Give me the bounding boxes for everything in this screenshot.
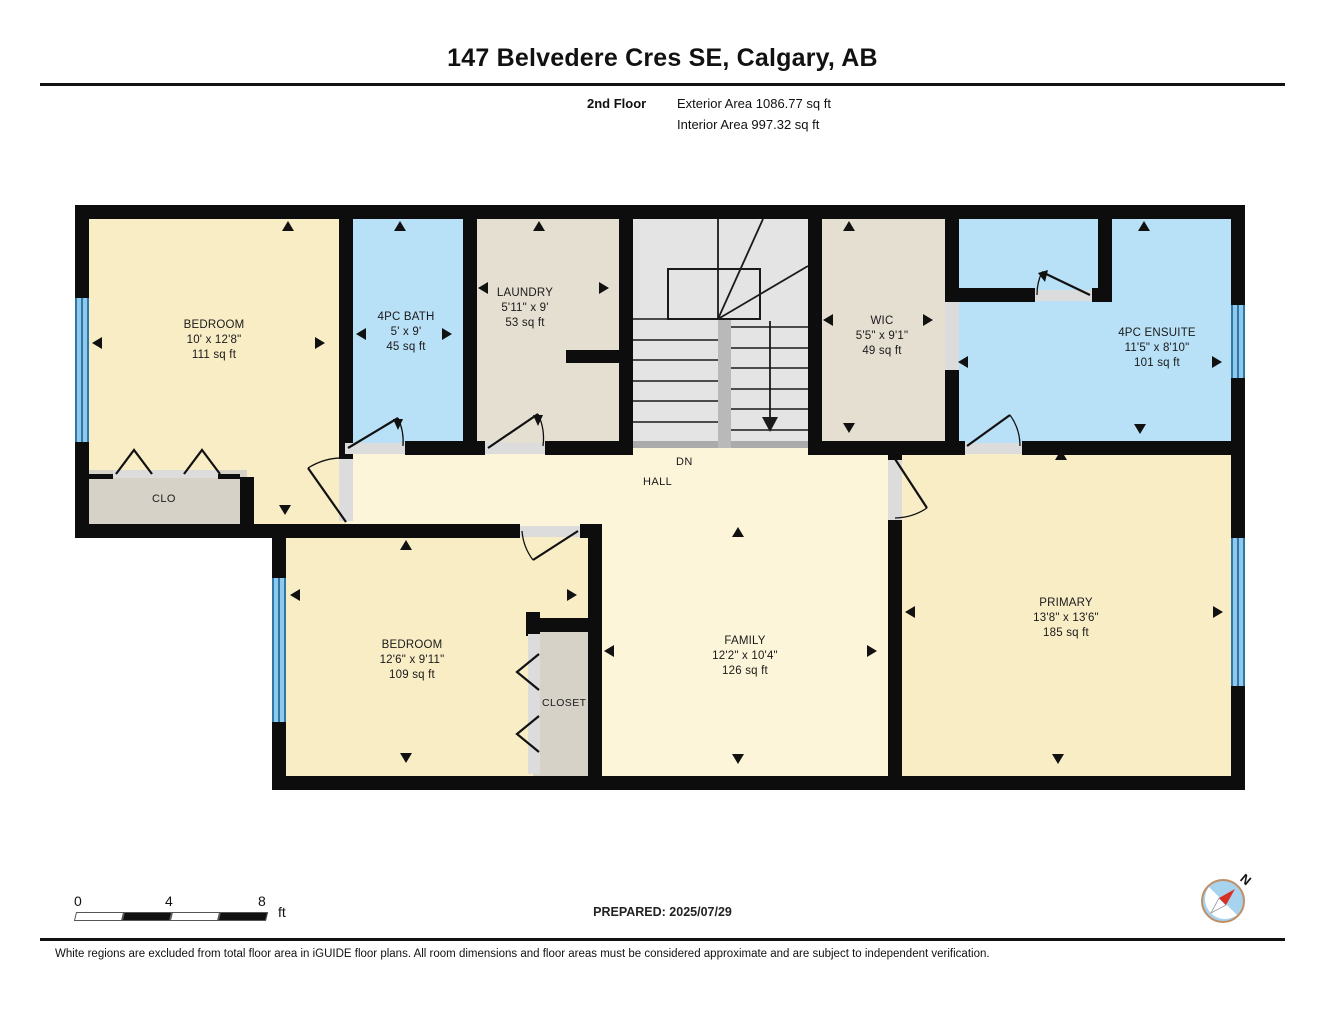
dimension-arrow-icon: [282, 221, 294, 231]
window-bedroom-1: [75, 298, 89, 442]
wall: [945, 288, 1035, 302]
room-label-family: FAMILY 12'2" x 10'4" 126 sq ft: [712, 634, 778, 679]
dimension-arrow-icon: [843, 221, 855, 231]
door-bedroom-1: [296, 455, 352, 527]
room-area: 101 sq ft: [1118, 356, 1196, 371]
wall: [888, 520, 902, 776]
room-dims: 12'6" x 9'11": [380, 653, 445, 668]
dimension-arrow-icon: [599, 282, 609, 294]
room-dims: 5'5" x 9'1": [856, 329, 908, 344]
room-label-wic: WIC 5'5" x 9'1" 49 sq ft: [856, 314, 908, 359]
dimension-arrow-icon: [1212, 356, 1222, 368]
wall: [545, 441, 633, 455]
dimension-arrow-icon: [1052, 754, 1064, 764]
room-label-clo: CLO: [152, 493, 176, 505]
dimension-arrow-icon: [905, 606, 915, 618]
stairs-dn-label: DN: [676, 456, 693, 468]
room-area: 49 sq ft: [856, 344, 908, 359]
room-label-closet: CLOSET: [542, 697, 586, 709]
wall: [808, 219, 822, 455]
interior-area: Interior Area 997.32 sq ft: [677, 117, 819, 132]
room-area: 45 sq ft: [378, 340, 435, 355]
room-dims: 13'8" x 13'6": [1033, 611, 1099, 626]
room-name: 4PC BATH: [378, 310, 435, 325]
dimension-arrow-icon: [92, 337, 102, 349]
wall: [272, 776, 1245, 790]
dimension-arrow-icon: [843, 423, 855, 433]
dimension-arrow-icon: [823, 314, 833, 326]
room-dims: 5'11" x 9': [497, 301, 553, 316]
dimension-arrow-icon: [442, 328, 452, 340]
room-dims: 5' x 9': [378, 325, 435, 340]
dimension-arrow-icon: [1213, 606, 1223, 618]
header-divider: [40, 83, 1285, 86]
dimension-arrow-icon: [732, 527, 744, 537]
room-area: 126 sq ft: [712, 664, 778, 679]
window-ensuite: [1231, 305, 1245, 378]
prepared-date: PREPARED: 2025/07/29: [0, 905, 1325, 919]
wall: [405, 441, 485, 455]
room-dims: 10' x 12'8": [184, 333, 245, 348]
room-label-bath: 4PC BATH 5' x 9' 45 sq ft: [378, 310, 435, 355]
dimension-arrow-icon: [356, 328, 366, 340]
stairs: [633, 219, 808, 448]
dimension-arrow-icon: [732, 754, 744, 764]
wall: [808, 441, 965, 455]
room-area: 109 sq ft: [380, 668, 445, 683]
room-label-hall: HALL: [643, 476, 672, 488]
door-bedroom-2: [518, 527, 582, 569]
door-toilet-room: [1032, 262, 1094, 302]
room-label-laundry: LAUNDRY 5'11" x 9' 53 sq ft: [497, 286, 553, 331]
room-family: [595, 448, 902, 783]
dimension-arrow-icon: [923, 314, 933, 326]
room-name: LAUNDRY: [497, 286, 553, 301]
disclaimer-text: White regions are excluded from total fl…: [55, 948, 990, 960]
wall: [1231, 205, 1245, 790]
room-name: BEDROOM: [184, 318, 245, 333]
room-name: WIC: [856, 314, 908, 329]
exterior-area: Exterior Area 1086.77 sq ft: [677, 96, 831, 111]
floorplan-sheet: 147 Belvedere Cres SE, Calgary, AB 2nd F…: [0, 0, 1325, 1024]
floor-label: 2nd Floor: [587, 96, 646, 111]
room-dims: 12'2" x 10'4": [712, 649, 778, 664]
wall: [566, 350, 619, 363]
dimension-arrow-icon: [315, 337, 325, 349]
dimension-arrow-icon: [1134, 424, 1146, 434]
dimension-arrow-icon: [867, 645, 877, 657]
clo-bifold-doors: [112, 448, 222, 474]
wall: [619, 219, 633, 455]
dimension-arrow-icon: [1138, 221, 1150, 231]
closet-bifold-doors: [511, 650, 541, 756]
window-primary: [1231, 538, 1245, 686]
page-title: 147 Belvedere Cres SE, Calgary, AB: [0, 44, 1325, 73]
footer-divider: [40, 938, 1285, 941]
room-name: 4PC ENSUITE: [1118, 326, 1196, 341]
dimension-arrow-icon: [279, 505, 291, 515]
wall: [240, 477, 254, 524]
wall: [218, 474, 240, 479]
room-label-bedroom-2: BEDROOM 12'6" x 9'11" 109 sq ft: [380, 638, 445, 683]
room-area: 185 sq ft: [1033, 626, 1099, 641]
door-primary: [890, 455, 934, 525]
dimension-arrow-icon: [533, 221, 545, 231]
cased-opening-wic-ensuite: [945, 302, 959, 370]
dimension-arrow-icon: [290, 589, 300, 601]
room-name: PRIMARY: [1033, 596, 1099, 611]
dimension-arrow-icon: [394, 221, 406, 231]
room-area: 53 sq ft: [497, 316, 553, 331]
dimension-arrow-icon: [958, 356, 968, 368]
wall: [526, 612, 540, 636]
room-dims: 11'5" x 8'10": [1118, 341, 1196, 356]
dimension-arrow-icon: [400, 540, 412, 550]
dimension-arrow-icon: [567, 589, 577, 601]
room-name: BEDROOM: [380, 638, 445, 653]
dimension-arrow-icon: [400, 753, 412, 763]
window-bedroom-2: [272, 578, 286, 722]
dimension-arrow-icon: [478, 282, 488, 294]
wall: [1098, 219, 1112, 302]
wall: [588, 524, 602, 776]
room-label-bedroom-1: BEDROOM 10' x 12'8" 111 sq ft: [184, 318, 245, 363]
wall: [75, 205, 1245, 219]
door-laundry: [482, 406, 550, 452]
room-name: FAMILY: [712, 634, 778, 649]
room-label-primary: PRIMARY 13'8" x 13'6" 185 sq ft: [1033, 596, 1099, 641]
dimension-arrow-icon: [604, 645, 614, 657]
wall: [89, 474, 113, 479]
room-area: 111 sq ft: [184, 348, 245, 363]
wall: [463, 219, 477, 455]
dimension-arrow-icon: [1055, 450, 1067, 460]
door-ensuite: [963, 410, 1025, 452]
room-label-ensuite: 4PC ENSUITE 11'5" x 8'10" 101 sq ft: [1118, 326, 1196, 371]
door-bath: [342, 408, 408, 452]
